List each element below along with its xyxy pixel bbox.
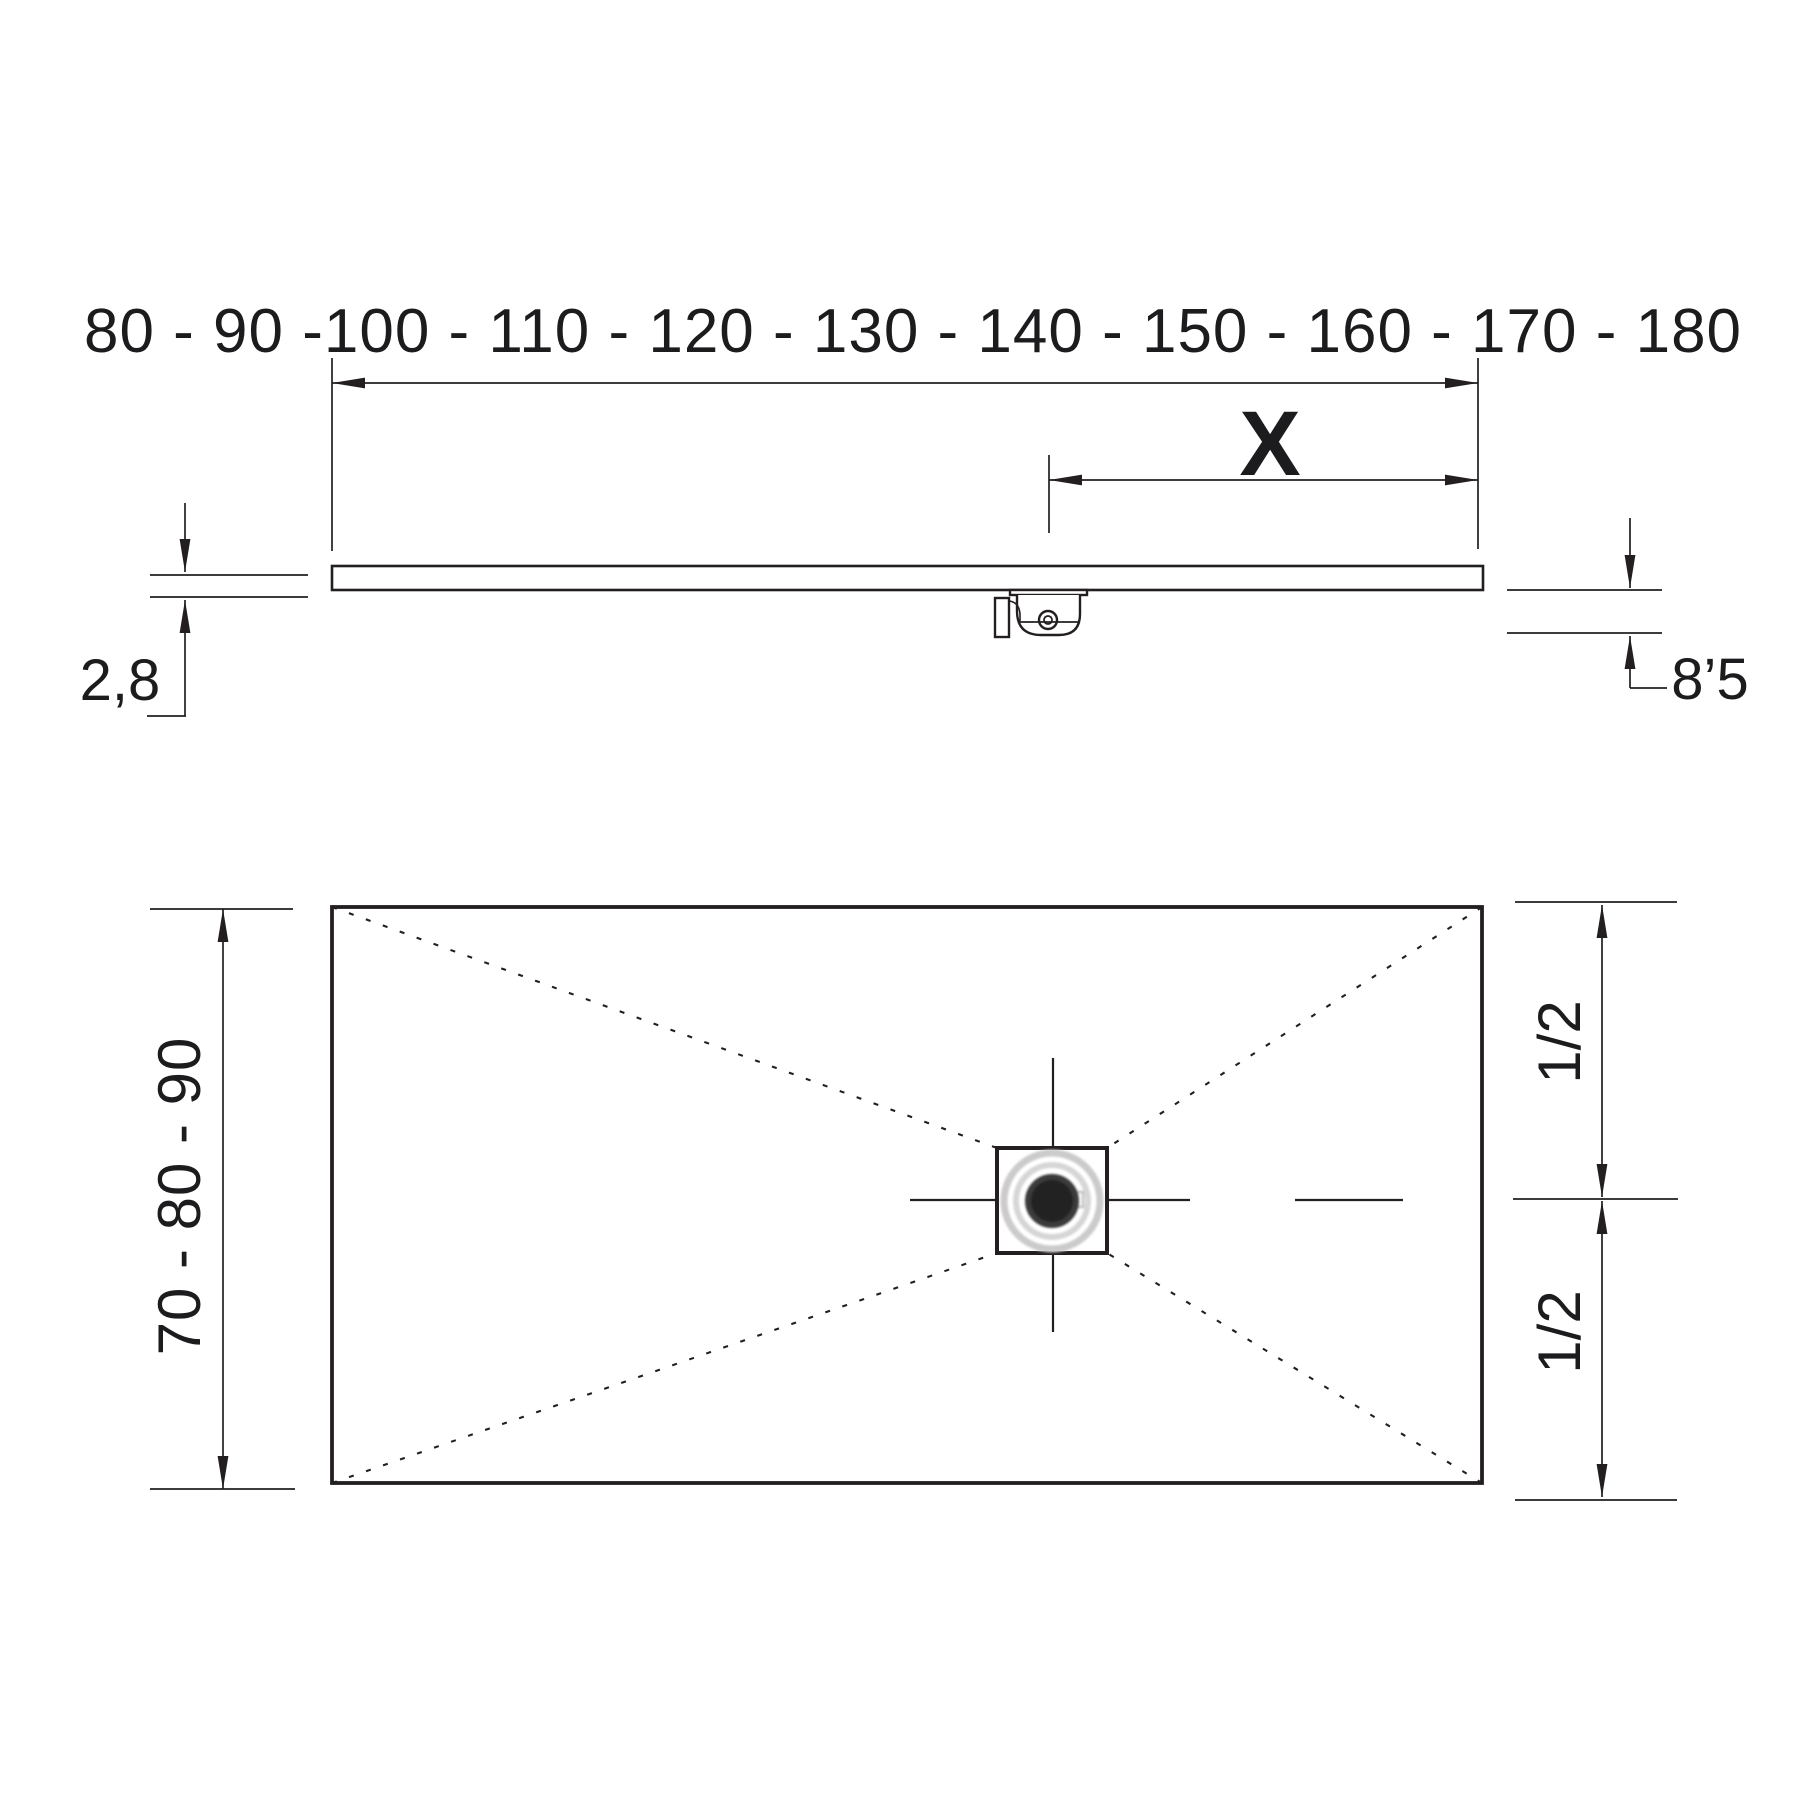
width-range-label: 80 - 90 -100 - 110 - 120 - 130 - 140 - 1…: [84, 301, 1742, 363]
half-width-bottom-label: 1/2: [1530, 1290, 1590, 1373]
drawing-linework: [0, 0, 1800, 1800]
thickness-dimension: [147, 503, 308, 716]
total-height-label: 8’5: [1671, 651, 1748, 709]
total-height-dimension: [1507, 518, 1667, 688]
grate-center-core: [1031, 1180, 1073, 1222]
tray-outline: [332, 907, 1482, 1483]
side-view: [147, 358, 1667, 716]
drain-grate-icon: [1004, 1153, 1100, 1249]
depth-range-label: 70 - 80 - 90: [150, 1037, 210, 1356]
trap-outlet-pipe: [995, 598, 1009, 637]
plan-view: [150, 902, 1678, 1500]
trap-flange: [1010, 590, 1087, 595]
drain-trap: [995, 590, 1087, 637]
drain-offset-label: X: [1239, 398, 1300, 490]
tray-profile: [332, 566, 1483, 590]
half-width-top-label: 1/2: [1530, 1000, 1590, 1083]
half-dimensions: [1513, 902, 1678, 1500]
shower-tray-dimension-drawing: 80 - 90 -100 - 110 - 120 - 130 - 140 - 1…: [0, 0, 1800, 1800]
overall-width-dimension: [332, 358, 1478, 551]
tray-thickness-label: 2,8: [80, 652, 161, 710]
